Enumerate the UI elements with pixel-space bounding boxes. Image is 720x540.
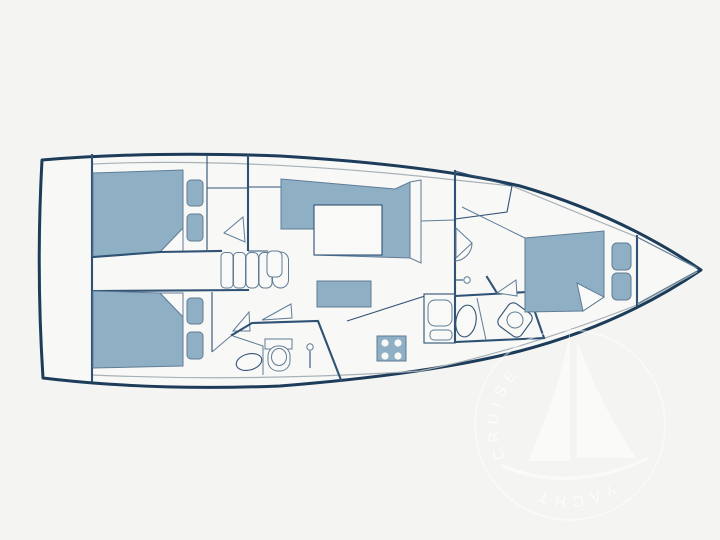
shower-mixer-head <box>464 277 470 283</box>
stove <box>377 336 406 361</box>
pillow <box>187 214 203 241</box>
watermark-genoa-sail <box>577 340 636 458</box>
coffee-table <box>317 281 371 307</box>
galley-drainer <box>430 330 452 340</box>
watermark-text-yacht: YACHT <box>531 480 619 510</box>
yacht-floor-plan: CRUISE YACHT <box>0 0 720 540</box>
stove-burner <box>394 339 401 346</box>
companionway-step <box>234 253 246 289</box>
salon-table <box>314 205 382 255</box>
pillow <box>612 273 631 300</box>
stove-burner <box>381 352 388 359</box>
companionway-step <box>246 253 259 289</box>
pillow <box>612 243 631 270</box>
stove-burner <box>381 339 388 346</box>
watermark-text-cruise: CRUISE <box>485 363 524 462</box>
companionway-step <box>221 253 233 289</box>
pillow <box>187 180 203 206</box>
salon-seat <box>267 251 282 277</box>
floor-plan-svg: CRUISE YACHT <box>0 0 720 540</box>
shower-mixer-head <box>307 344 313 350</box>
corridor-wall-bottom <box>93 290 248 291</box>
watermark-logo: CRUISE YACHT <box>475 330 665 520</box>
pillow <box>187 298 203 324</box>
pillow <box>187 332 203 359</box>
watermark-mainsail <box>528 332 570 461</box>
stove-burner <box>394 352 401 359</box>
watermark-boat-hull <box>503 459 646 478</box>
galley-sink <box>428 300 452 326</box>
